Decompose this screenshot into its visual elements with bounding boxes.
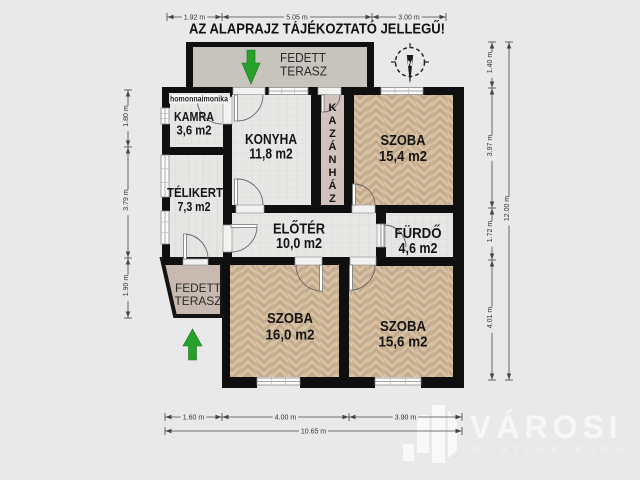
svg-text:4.00 m: 4.00 m	[275, 414, 297, 421]
svg-text:TÉLIKERT: TÉLIKERT	[167, 185, 223, 200]
svg-text:FEDETT: FEDETT	[175, 281, 222, 295]
svg-text:H: H	[329, 167, 337, 179]
svg-text:TERASZ: TERASZ	[280, 64, 327, 79]
svg-text:Á: Á	[329, 179, 337, 192]
svg-text:INGATLANIRODA: INGATLANIRODA	[463, 444, 629, 454]
svg-text:KAMRA: KAMRA	[174, 110, 214, 124]
svg-text:Á: Á	[329, 140, 337, 153]
svg-text:15,4 m2: 15,4 m2	[379, 148, 427, 165]
svg-text:Z: Z	[329, 128, 336, 140]
svg-text:K: K	[329, 102, 337, 114]
svg-text:SZOBA: SZOBA	[380, 318, 426, 335]
svg-text:Z: Z	[329, 193, 336, 205]
svg-text:AZ ALAPRAJZ TÁJÉKOZTATÓ JELLEG: AZ ALAPRAJZ TÁJÉKOZTATÓ JELLEGŰ!	[189, 20, 445, 38]
svg-text:4,6 m2: 4,6 m2	[399, 240, 438, 257]
svg-text:7,3 m2: 7,3 m2	[178, 200, 211, 214]
svg-text:3.79 m: 3.79 m	[123, 189, 130, 211]
svg-text:10,0 m2: 10,0 m2	[276, 235, 322, 252]
svg-text:3.90 m: 3.90 m	[395, 414, 417, 421]
svg-text:1.80 m: 1.80 m	[123, 105, 130, 127]
svg-text:3.00 m: 3.00 m	[398, 14, 420, 21]
svg-text:SZOBA: SZOBA	[381, 132, 426, 149]
svg-text:11,8 m2: 11,8 m2	[249, 146, 293, 163]
svg-text:10.65 m: 10.65 m	[301, 428, 326, 435]
svg-text:homonnaimonika: homonnaimonika	[170, 95, 228, 104]
svg-text:1.40 m: 1.40 m	[487, 52, 494, 74]
svg-text:16,0 m2: 16,0 m2	[266, 327, 315, 344]
svg-text:3.97 m: 3.97 m	[487, 135, 494, 157]
svg-text:1.92 m: 1.92 m	[184, 14, 206, 21]
svg-text:TERASZ: TERASZ	[175, 294, 222, 308]
svg-text:12.00 m: 12.00 m	[504, 196, 511, 221]
svg-text:N: N	[329, 154, 337, 166]
svg-text:SZOBA: SZOBA	[267, 310, 313, 327]
svg-text:A: A	[329, 115, 337, 127]
svg-text:15,6 m2: 15,6 m2	[379, 334, 428, 351]
svg-text:1.90 m: 1.90 m	[123, 275, 130, 297]
svg-text:1.60 m: 1.60 m	[183, 414, 205, 421]
svg-text:1.72 m: 1.72 m	[487, 221, 494, 243]
svg-text:4.01 m: 4.01 m	[487, 307, 494, 329]
svg-text:VÁROSI: VÁROSI	[470, 409, 623, 445]
svg-text:5.05 m: 5.05 m	[286, 14, 308, 21]
svg-text:3,6 m2: 3,6 m2	[177, 124, 212, 138]
